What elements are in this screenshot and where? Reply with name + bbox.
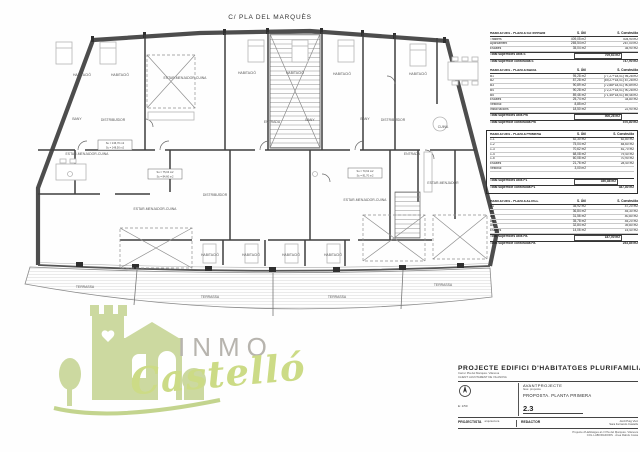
- room-label-cuina: CUINA: [438, 125, 449, 129]
- room-label-bany: BANY: [72, 117, 82, 121]
- room-label-habitacio: HABITACIÓ: [201, 252, 219, 257]
- room-label-terrassa: TERRASSA: [434, 283, 453, 287]
- room-label-estar: ESTAR-MENJADOR-CUINA: [134, 207, 178, 211]
- room-label-estar-menjador: ESTAR-MENJADOR: [427, 181, 459, 185]
- room-label-habitacio: HABITACIÓ: [238, 70, 256, 75]
- area-table: HABITATGES - PLANTA PRIMERAS. ÚtilS. Con…: [486, 130, 638, 194]
- room-label-entrada: ENTRADA: [264, 120, 281, 124]
- floor-plan-svg: Su = 136,70 m2 Sc = 148,50 m2 Su = 75,04…: [20, 24, 510, 334]
- projectista-note: arquitectura: [485, 420, 500, 427]
- area-tables: HABITATGES - PLANTA SOTERRANIS. ÚtilS. C…: [490, 32, 638, 251]
- table-total-row: Total superfície construïda S747,90 m2: [490, 59, 638, 64]
- area-tag-line: Sc = 148,50 m2: [106, 146, 125, 150]
- room-label-estar: ESTAR-MENJADOR-CUINA: [344, 198, 388, 202]
- area-tags: Su = 136,70 m2 Sc = 148,50 m2 Su = 75,04…: [98, 140, 382, 179]
- table-total-row: Total superfícies útils P1350,88 m2: [490, 178, 634, 185]
- room-label-habitacio: HABITACIÓ: [73, 72, 91, 77]
- watermark-castello-text: Castelló: [128, 344, 307, 403]
- room-label-habitacio: HABITACIÓ: [333, 71, 351, 76]
- door-arcs: [78, 76, 434, 182]
- room-label-bany: BANY: [360, 117, 370, 121]
- project-subtitle-2: CLIENT: AJUNTAMENT DE VILANOVA: [458, 376, 638, 380]
- watermark-inmo-text: INMO: [178, 332, 274, 363]
- room-label-distribuidor: DISTRIBUÏDOR: [101, 118, 126, 122]
- title-block: PROJECTE EDIFICI D'HABITATGES PLURIFAMIL…: [458, 365, 638, 438]
- room-label-terrassa: TERRASSA: [328, 295, 347, 299]
- room-label-habitacio: HABITACIÓ: [111, 72, 129, 77]
- area-tag-line: Sc = 81,70 m2: [357, 174, 374, 178]
- room-label-terrassa: TERRASSA: [201, 295, 220, 299]
- room-label-estar: ESTAR-MENJADOR-CUINA: [164, 76, 208, 80]
- room-label-terrassa: TERRASSA: [76, 285, 95, 289]
- room-labels: HABITACIÓ HABITACIÓ HABITACIÓ HABITACIÓ …: [66, 70, 460, 299]
- room-label-distribuidor: DISTRIBUÏDOR: [381, 118, 406, 122]
- scale-note: E: 1/50: [458, 404, 516, 408]
- drawing-title: PROPOSTA. PLANTA PRIMERA: [523, 393, 638, 398]
- redactor-label: REDACTOR: [521, 420, 540, 427]
- area-table: HABITATGES - PLANTA SOTERRANIS. ÚtilS. C…: [490, 32, 638, 64]
- room-label-habitacio: HABITACIÓ: [409, 71, 427, 76]
- room-label-bany: BANY: [305, 118, 315, 122]
- area-tag-line: Su = 75,04 m2: [157, 170, 175, 174]
- sheet-number: 2.3: [523, 404, 583, 414]
- terrace-band: [25, 267, 492, 316]
- room-label-habitacio: HABITACIÓ: [324, 252, 342, 257]
- table-total-row: Total superfícies útils PA187,00 m2: [490, 234, 638, 241]
- staircase: [270, 34, 420, 238]
- room-label-habitacio: HABITACIÓ: [242, 252, 260, 257]
- table-total-row: Total superfície construïda PB570,80 m2: [490, 120, 638, 125]
- street-label: C/ PLA DEL MARQUÈS: [0, 14, 540, 21]
- room-label-distribuidor: DISTRIBUÏDOR: [203, 193, 228, 197]
- table-total-row: Total superfícies útils PB506,28 m2: [490, 113, 638, 120]
- scanned-plan-page: C/ PLA DEL MARQUÈS: [0, 0, 640, 452]
- phase-note: fase: proposta: [523, 388, 638, 392]
- area-table: HABITATGES - PLANTA ALTELLS. ÚtilS. Cons…: [490, 200, 638, 246]
- room-label-habitacio: HABITACIÓ: [286, 70, 304, 75]
- room-label-estar: ESTAR-MENJADOR-CUINA: [66, 152, 110, 156]
- table-total-row: Total superfícies útils S709,63 m2: [490, 52, 638, 59]
- table-total-row: Total superfície construïda P1387,80 m2: [490, 185, 634, 190]
- area-tag-line: Su = 70,62 m2: [357, 169, 375, 173]
- area-tag-line: Sc = 84,60 m2: [157, 175, 174, 179]
- room-label-entrada: ENTRADA: [404, 152, 421, 156]
- area-tag-line: Su = 136,70 m2: [106, 141, 125, 145]
- table-total-row: Total superfície construïda PA253,85 m2: [490, 241, 638, 246]
- north-arrow-icon: [458, 384, 472, 398]
- projectista-label: PROJECTISTA: [458, 420, 482, 427]
- scale-cell: E: 1/50: [458, 383, 519, 416]
- footer-line-2: COL·LABORADORS · Àrea Rafols Costa: [458, 434, 638, 438]
- divider: [458, 381, 638, 382]
- area-table: HABITATGES - PLANTA BAIXAS. ÚtilS. Const…: [490, 69, 638, 125]
- redactor-name-2: Sara Ferrando Castells: [609, 422, 638, 426]
- room-label-habitacio: HABITACIÓ: [282, 252, 300, 257]
